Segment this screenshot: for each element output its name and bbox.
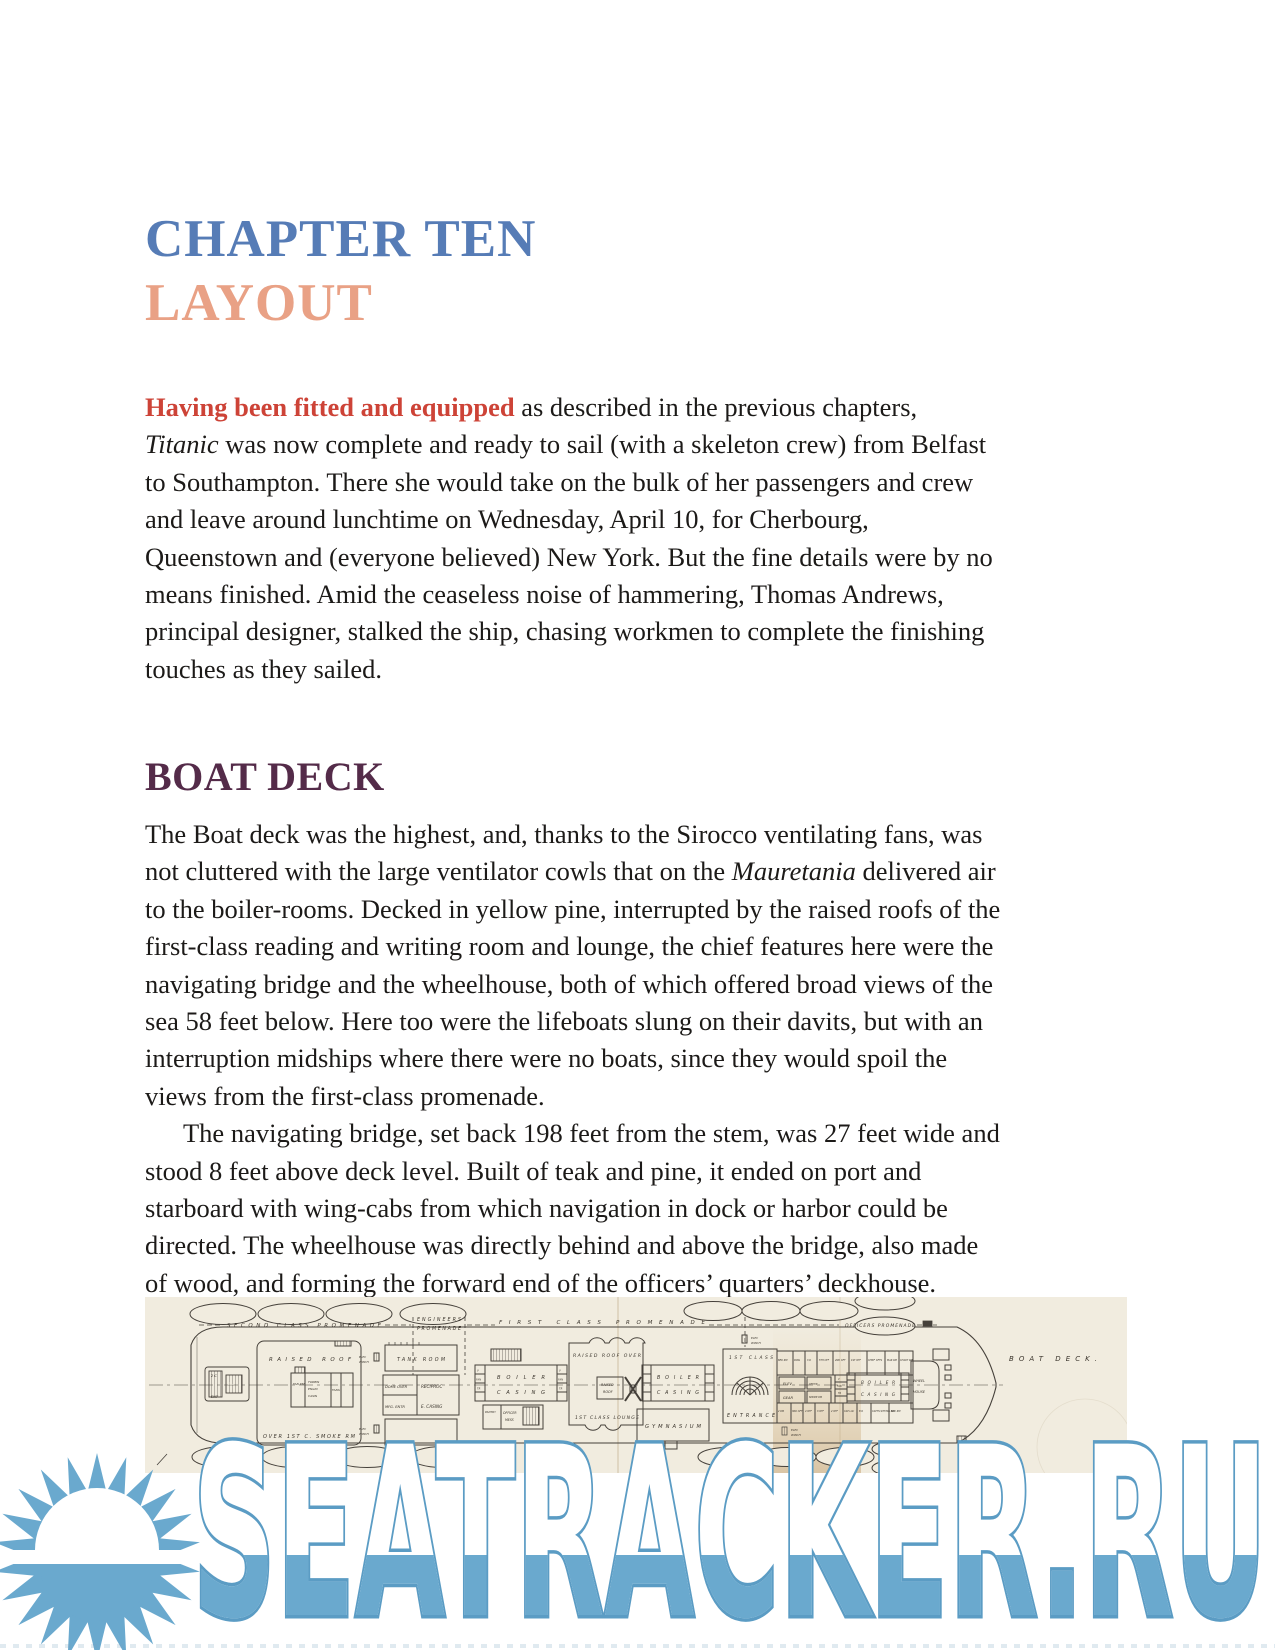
text-line: Having been fitted and equipped as descr… <box>145 389 1085 426</box>
text-run: delivered air <box>856 856 996 886</box>
text-run: as described in the previous chapters, <box>515 392 918 422</box>
roof-label: ROOF <box>603 1390 613 1394</box>
trunk-label: TR <box>477 1387 481 1391</box>
trunk-label: TR <box>559 1387 563 1391</box>
elevator-label: ELE <box>228 1382 235 1386</box>
text-run: Having been fitted and equipped <box>145 392 515 422</box>
lifeboat <box>742 1302 800 1321</box>
elevator-label: ELEV <box>783 1382 793 1386</box>
elec-winch-label: WINCH <box>751 1341 762 1345</box>
text-line: starboard with wing-cabs from which navi… <box>145 1190 1085 1227</box>
cabin-label: 4 OFF <box>805 1410 813 1413</box>
text-run: Titanic <box>145 429 219 459</box>
house-label: HOUSE <box>913 1390 926 1394</box>
text-line: Queenstown and (everyone believed) New Y… <box>145 539 1085 576</box>
casing-label: CASIN <box>308 1394 318 1398</box>
text-run: touches as they sailed. <box>145 654 382 684</box>
paragraph-boatdeck-1: The Boat deck was the highest, and, than… <box>145 816 1085 1115</box>
text-line: touches as they sailed. <box>145 651 1085 688</box>
text-run: The Boat deck was the highest, and, than… <box>145 819 983 849</box>
cabin-label: BED RM <box>778 1359 787 1362</box>
cabin-label: CAP LAV <box>844 1410 854 1413</box>
text-line: to the boiler-rooms. Decked in yellow pi… <box>145 891 1085 928</box>
engine-label: ENGIN <box>308 1387 318 1391</box>
text-run: of wood, and forming the forward end of … <box>145 1268 936 1298</box>
lifeboat <box>684 1302 742 1321</box>
text-line: stood 8 feet above deck level. Built of … <box>145 1153 1085 1190</box>
lifeboat <box>258 1304 324 1325</box>
fans-label: FANS <box>332 1388 340 1392</box>
section-heading: BOAT DECK <box>145 753 385 800</box>
text-line: first-class reading and writing room and… <box>145 928 1085 965</box>
chapter-subtitle: LAYOUT <box>145 273 373 333</box>
trunk-label: TR <box>838 1392 841 1395</box>
chapter-title: CHAPTER TEN <box>145 209 536 269</box>
text-line: The navigating bridge, set back 198 feet… <box>145 1115 1085 1152</box>
text-line: to Southampton. There she would take on … <box>145 464 1085 501</box>
sun-horizon-band <box>0 1550 204 1564</box>
scan-texture <box>0 1644 1275 1648</box>
cabin-label: 5TH OFF <box>819 1359 830 1362</box>
book-page: CHAPTER TEN LAYOUT Having been fitted an… <box>0 0 1275 1650</box>
text-run: starboard with wing-cabs from which navi… <box>145 1193 948 1223</box>
engineers-promenade-label: ENGINEERS <box>417 1317 461 1323</box>
cabin-label: 1ST OFF <box>851 1359 862 1362</box>
cabin-label: 3 R <box>807 1359 811 1362</box>
dome-over-label: DOME OVER <box>385 1385 408 1389</box>
elec-winch-label: ELEC <box>359 1355 366 1359</box>
text-run: to the boiler-rooms. Decked in yellow pi… <box>145 894 1000 924</box>
cabin-label: CHIEF OFFS <box>868 1359 882 1362</box>
text-line: Titanic was now complete and ready to sa… <box>145 426 1085 463</box>
text-run: first-class reading and writing room and… <box>145 931 993 961</box>
raised-roof-over-label: RAISED ROOF OVER <box>573 1353 641 1359</box>
text-line: principal designer, stalked the ship, ch… <box>145 613 1085 650</box>
cabin-label: 2 OFF <box>831 1410 839 1413</box>
elevator-label: ENT <box>211 1395 219 1399</box>
cabin-label: MAR RM <box>887 1359 897 1362</box>
text-run: not cluttered with the large ventilator … <box>145 856 732 886</box>
text-run: stood 8 feet above deck level. Built of … <box>145 1156 921 1186</box>
cabin-label: 2ND OFF <box>835 1359 846 1362</box>
text-run: interruption midships where there were n… <box>145 1043 947 1073</box>
vent-label: V <box>477 1369 479 1373</box>
engineers-promenade-label: PROMENADE <box>417 1326 462 1332</box>
paragraph-boatdeck-2: The navigating bridge, set back 198 feet… <box>145 1115 1085 1302</box>
fan-room-label: FAN RM <box>293 1382 305 1386</box>
cabin-label: 3RD OFF <box>792 1410 803 1413</box>
office-label: OFFICE <box>809 1383 818 1386</box>
engine-casing-label: E. CASING <box>421 1404 443 1409</box>
officer-mess-label: OFFICER <box>503 1411 517 1415</box>
pantry-label: PANTRY <box>485 1410 496 1414</box>
text-line: The Boat deck was the highest, and, than… <box>145 816 1085 853</box>
cabin-label: 3 OFF <box>817 1410 825 1413</box>
wheel-label: WHEEL <box>913 1379 925 1383</box>
elevator-label: 2 C <box>211 1374 217 1378</box>
elec-winch-label: WINCH <box>359 1360 370 1364</box>
gear-label: GEAR <box>783 1396 794 1400</box>
text-run: directed. The wheelhouse was directly be… <box>145 1230 978 1260</box>
text-line: interruption midships where there were n… <box>145 1040 1085 1077</box>
turbine-label: TURBIN <box>308 1380 320 1384</box>
text-line: means finished. Amid the ceaseless noise… <box>145 576 1085 613</box>
fan-label: FAN <box>558 1378 563 1382</box>
smoke-room-label: SMOKE RM <box>809 1396 822 1399</box>
text-run: Mauretania <box>732 856 856 886</box>
text-run: The navigating bridge, set back 198 feet… <box>183 1118 1000 1148</box>
text-run: navigating bridge and the wheelhouse, bo… <box>145 969 993 999</box>
text-run: Queenstown and (everyone believed) New Y… <box>145 542 993 572</box>
vent-label: V <box>559 1369 561 1373</box>
text-line: and leave around lunchtime on Wednesday,… <box>145 501 1085 538</box>
text-run: and leave around lunchtime on Wednesday,… <box>145 504 869 534</box>
text-run: to Southampton. There she would take on … <box>145 467 973 497</box>
mfg-entrance-label: MFG. ENTR <box>385 1405 405 1409</box>
text-line: sea 58 feet below. Here too were the lif… <box>145 1003 1085 1040</box>
text-run: was now complete and ready to sail (with… <box>219 429 987 459</box>
paragraph-intro: Having been fitted and equipped as descr… <box>145 389 1085 688</box>
seatracker-watermark: SEATRACKER.RU SEATRACKER.RU <box>185 1420 1275 1650</box>
text-line: views from the first-class promenade. <box>145 1078 1085 1115</box>
cabin-label: 2 RM <box>778 1410 784 1413</box>
seatracker-sun-logo <box>0 1447 208 1650</box>
paragraph-boatdeck: The Boat deck was the highest, and, than… <box>145 816 1085 1302</box>
lifeboat <box>190 1304 256 1325</box>
raised-label: RAISED <box>601 1383 614 1387</box>
fan-label: FAN <box>476 1378 481 1382</box>
text-run: views from the first-class promenade. <box>145 1081 545 1111</box>
cabin-label: PASS <box>794 1359 800 1362</box>
text-run: sea 58 feet below. Here too were the lif… <box>145 1006 983 1036</box>
fan-label: FAN <box>837 1385 842 1388</box>
entrance-label: ENTRANCE <box>727 1413 776 1419</box>
elec-winch-label: ELEC <box>751 1336 758 1340</box>
text-run: means finished. Amid the ceaseless noise… <box>145 579 944 609</box>
cabin-label: NAV RM <box>891 1410 900 1413</box>
reciprocating-label: RECIPROC <box>421 1384 442 1389</box>
cabin-label: B R <box>859 1410 863 1413</box>
text-line: navigating bridge and the wheelhouse, bo… <box>145 966 1085 1003</box>
second-class-promenade-label: SECOND CLASS PROMENADE <box>227 1323 382 1329</box>
text-line: not cluttered with the large ventilator … <box>145 853 1085 890</box>
text-run: principal designer, stalked the ship, ch… <box>145 616 984 646</box>
lifeboat <box>800 1302 858 1321</box>
officers-promenade-label: OFFICERS PROMENADE <box>845 1323 915 1329</box>
text-line: directed. The wheelhouse was directly be… <box>145 1227 1085 1264</box>
first-class-label: 1ST CLASS <box>729 1355 773 1361</box>
lifeboat <box>326 1304 392 1325</box>
